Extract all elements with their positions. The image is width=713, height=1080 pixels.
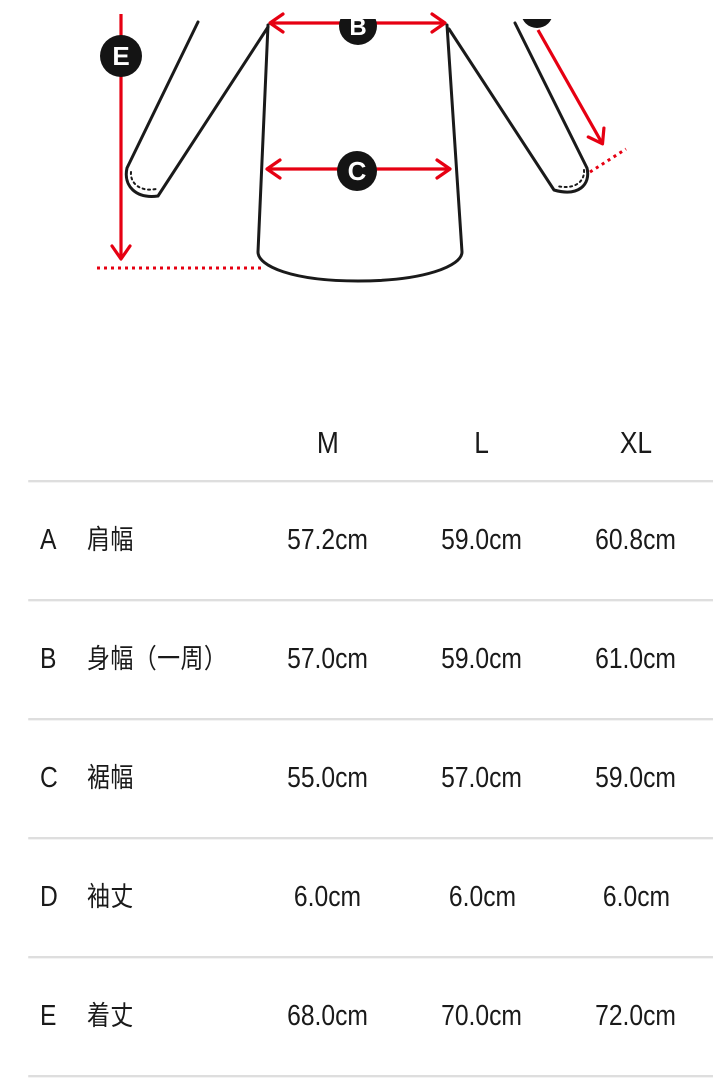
badge-b-label: B [349, 14, 366, 41]
measure-arrows [97, 14, 626, 268]
right-sleeve [449, 23, 588, 192]
dimension-letter: D [40, 883, 87, 912]
dimension-letter: E [40, 1002, 87, 1031]
right-cuff-seam-dotted [557, 170, 584, 187]
size-value: 6.0cm [559, 883, 713, 912]
garment-measurement-diagram: B E C [0, 0, 713, 300]
left-cuff-seam-dotted [131, 172, 156, 190]
dimension-label: 裾幅 [87, 765, 250, 792]
size-value: 59.0cm [559, 764, 713, 793]
dimension-label: 肩幅 [87, 527, 250, 554]
dimension-label: 袖丈 [87, 884, 250, 911]
column-header-xl: XL [559, 427, 713, 458]
size-value: 59.0cm [405, 645, 559, 674]
row-divider [28, 1075, 713, 1077]
size-row-d: D 袖丈 6.0cm 6.0cm 6.0cm [40, 839, 713, 956]
badge-e-label: E [112, 41, 129, 71]
dimension-label: 身幅（一周） [87, 646, 250, 673]
size-value: 6.0cm [405, 883, 559, 912]
size-table-header: M L XL [40, 300, 713, 480]
cuff-extension-dotted-line [590, 149, 626, 172]
column-header-l: L [405, 427, 559, 458]
size-value: 55.0cm [250, 764, 405, 793]
size-value: 57.0cm [250, 645, 405, 674]
size-value: 6.0cm [250, 883, 405, 912]
size-value: 57.2cm [250, 526, 405, 555]
size-row-e: E 着丈 68.0cm 70.0cm 72.0cm [40, 958, 713, 1075]
size-value: 72.0cm [559, 1002, 713, 1031]
dimension-letter: C [40, 764, 87, 793]
dimension-letter: A [40, 526, 87, 555]
badge-c-label: C [348, 156, 367, 186]
measure-badges: B E C [100, 0, 553, 191]
size-value: 70.0cm [405, 1002, 559, 1031]
size-value: 59.0cm [405, 526, 559, 555]
size-value: 68.0cm [250, 1002, 405, 1031]
dimension-letter: B [40, 645, 87, 674]
badge-d-circle [521, 0, 553, 28]
size-value: 61.0cm [559, 645, 713, 674]
size-row-c: C 裾幅 55.0cm 57.0cm 59.0cm [40, 720, 713, 837]
left-sleeve [126, 22, 268, 196]
dimension-label: 着丈 [87, 1003, 250, 1030]
size-value: 57.0cm [405, 764, 559, 793]
size-row-b: B 身幅（一周） 57.0cm 59.0cm 61.0cm [40, 601, 713, 718]
size-chart-screen: B E C M L XL A 肩幅 57.2cm 59.0cm 60.8cm [0, 0, 713, 1080]
column-header-m: M [250, 427, 405, 458]
size-table: M L XL A 肩幅 57.2cm 59.0cm 60.8cm B 身幅（一周… [0, 300, 713, 1077]
size-row-a: A 肩幅 57.2cm 59.0cm 60.8cm [40, 482, 713, 599]
size-value: 60.8cm [559, 526, 713, 555]
